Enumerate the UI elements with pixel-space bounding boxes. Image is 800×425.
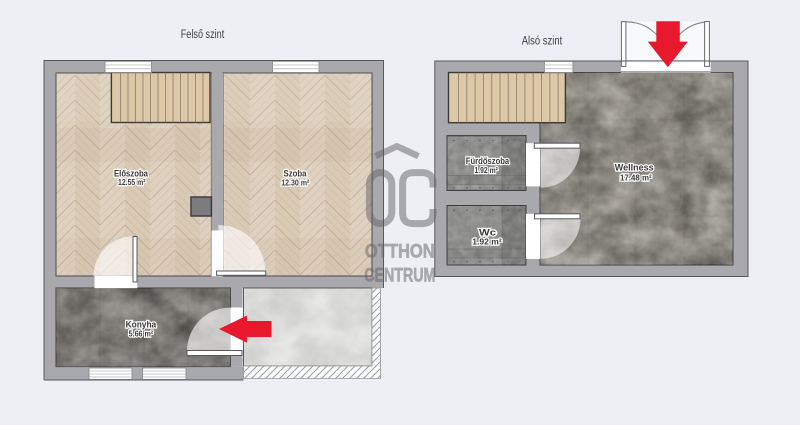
svg-text:Wellness: Wellness (615, 163, 654, 173)
svg-text:Alsó szint: Alsó szint (522, 36, 563, 48)
svg-text:1.92 m²: 1.92 m² (472, 236, 502, 246)
svg-text:Felső szint: Felső szint (181, 29, 225, 41)
svg-text:17.48 m²: 17.48 m² (620, 173, 652, 183)
svg-text:5.66 m²: 5.66 m² (129, 329, 154, 339)
svg-text:CENTRUM: CENTRUM (364, 265, 435, 286)
svg-text:12.30 m²: 12.30 m² (281, 177, 309, 187)
svg-text:12.55 m²: 12.55 m² (118, 177, 146, 187)
svg-text:1.92 m²: 1.92 m² (474, 165, 498, 175)
svg-text:OTTHON: OTTHON (365, 242, 435, 263)
